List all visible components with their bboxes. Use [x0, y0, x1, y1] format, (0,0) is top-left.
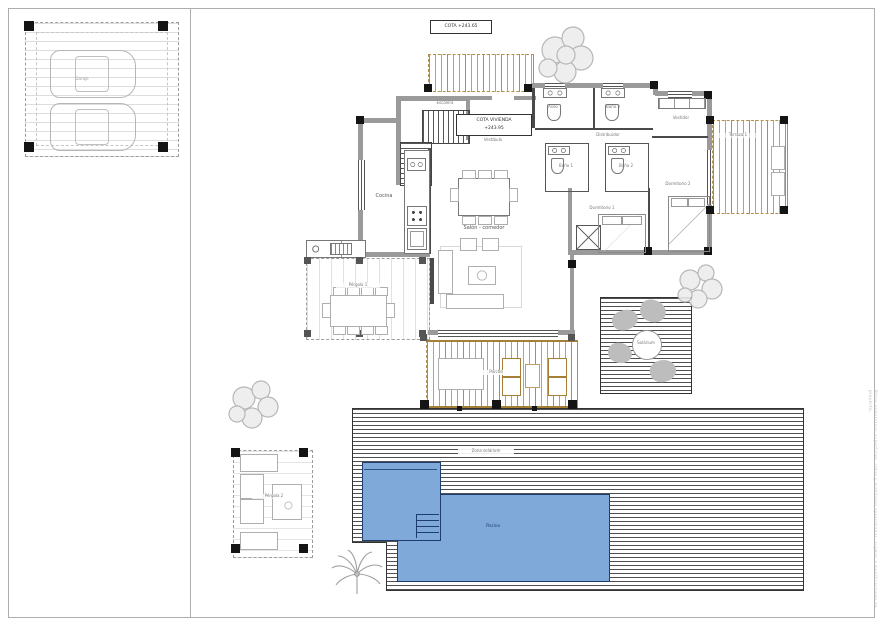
house-level-title: COTA VIVIENDA — [457, 118, 531, 123]
window — [668, 91, 692, 98]
room-label-bano1: Baño 1 — [551, 164, 581, 169]
tree-icon — [533, 22, 599, 94]
chair — [509, 188, 518, 202]
bed-pillow — [671, 198, 688, 207]
house-level-value: +243.95 — [457, 126, 531, 131]
planter — [771, 172, 785, 196]
sofa — [438, 250, 453, 294]
room-label-bano3: Baño 3 — [599, 105, 627, 110]
chair — [347, 326, 360, 335]
armchair — [460, 238, 477, 251]
bed-pillow — [602, 216, 622, 225]
column — [650, 81, 658, 89]
partition-wall — [593, 88, 595, 130]
room-label-dorm2: Dormitorio 2 — [652, 182, 704, 187]
chair — [478, 170, 492, 179]
column — [780, 116, 788, 124]
room-label-piscina: Piscina — [473, 524, 513, 529]
column — [420, 400, 429, 409]
column — [706, 206, 714, 214]
pool-steps — [416, 514, 439, 538]
column — [419, 257, 426, 264]
bathroom-vanity — [548, 146, 570, 155]
chair — [462, 170, 476, 179]
wall — [358, 118, 400, 123]
house-level-box: COTA VIVIENDA +243.95 — [456, 114, 532, 136]
chair — [322, 303, 331, 318]
drawing-sheet: Plano orientativo: superficies, cotas y … — [0, 0, 882, 625]
lounge-chair — [548, 358, 567, 377]
lounge-chair — [502, 377, 521, 396]
chair — [361, 326, 374, 335]
dining-table — [458, 178, 510, 216]
outdoor-dining-table — [330, 295, 387, 327]
carport-column — [158, 21, 168, 31]
barbecue-grill — [330, 243, 352, 255]
pergola-table — [272, 484, 302, 520]
room-label-garaje: Garaje — [62, 77, 102, 82]
column — [424, 84, 432, 92]
carport-column — [24, 21, 34, 31]
lounge-chair — [548, 377, 567, 396]
tree-icon — [224, 376, 284, 434]
column — [492, 400, 501, 409]
palm-tree-icon — [330, 546, 384, 600]
entry-pergola-slats — [428, 54, 534, 92]
room-label-escalera: Escalera — [422, 101, 468, 106]
sheet-divider-line — [190, 8, 191, 617]
room-label-dorm1: Dormitorio 1 — [576, 206, 628, 211]
partition-wall — [532, 88, 535, 128]
chair — [333, 287, 346, 296]
carport-column — [158, 142, 168, 152]
chair — [478, 216, 492, 225]
column — [524, 84, 532, 92]
column — [568, 334, 575, 341]
chair — [494, 170, 508, 179]
column — [420, 334, 427, 341]
armchair — [240, 499, 264, 524]
room-label-vestibulo: Vestíbulo — [471, 138, 515, 143]
kitchen-oven — [407, 228, 427, 250]
car-cabin — [75, 56, 109, 92]
site-level-box: COTA +243.65 — [430, 20, 492, 34]
tree-icon — [672, 260, 728, 314]
carport-column — [24, 142, 34, 152]
chair — [361, 287, 374, 296]
kitchen-sink — [407, 158, 426, 171]
chair — [462, 216, 476, 225]
bed-pillow — [622, 216, 642, 225]
sofa — [446, 294, 504, 309]
column — [780, 206, 788, 214]
bed-pillow — [688, 198, 705, 207]
room-label-vestidor: Vestidor — [662, 116, 700, 121]
bathroom-vanity — [601, 88, 625, 98]
chair — [375, 326, 388, 335]
chair — [386, 303, 395, 318]
room-label-pergola1: Pérgola 1 — [336, 283, 380, 288]
sofa — [240, 532, 278, 550]
partition-wall — [648, 188, 650, 250]
chair — [450, 188, 459, 202]
window — [358, 160, 365, 210]
room-label-pergola2: Pérgola 2 — [252, 494, 296, 499]
sofa — [240, 454, 278, 472]
partition-wall — [652, 136, 708, 138]
car-outline — [50, 50, 136, 98]
coffee-table — [468, 266, 496, 285]
bathroom-vanity — [608, 146, 630, 155]
column — [568, 400, 577, 409]
wall — [568, 188, 572, 252]
window — [438, 330, 558, 337]
room-label-terraza1: Terraza 1 — [716, 133, 760, 138]
column — [457, 406, 462, 411]
planter — [771, 146, 785, 170]
column — [231, 448, 240, 457]
car-cabin — [75, 109, 109, 145]
deck-label: Zona solárium — [458, 449, 514, 454]
chair — [494, 216, 508, 225]
partition-wall — [535, 128, 653, 130]
tv-unit — [430, 258, 434, 304]
wardrobe — [658, 98, 706, 109]
column — [304, 330, 311, 337]
room-label-porche: Porche — [478, 370, 514, 375]
column — [356, 116, 364, 124]
side-disclaimer-text: Plano orientativo: superficies, cotas y … — [868, 390, 878, 615]
pool-edge-line — [364, 469, 437, 470]
side-table — [525, 364, 540, 388]
room-label-bano2: Baño 2 — [611, 164, 641, 169]
chair — [347, 287, 360, 296]
car-outline — [50, 103, 136, 151]
room-label-cocina: Cocina — [366, 194, 402, 200]
column — [299, 448, 308, 457]
chair — [375, 287, 388, 296]
chair — [333, 326, 346, 335]
column — [304, 257, 311, 264]
kitchen-hob — [407, 206, 427, 226]
site-level-text: COTA +243.65 — [431, 24, 491, 29]
column — [356, 257, 363, 264]
room-label-distribuidor: Distribuidor — [584, 133, 632, 138]
room-label-salon: Salón - comedor — [454, 226, 514, 232]
column — [568, 260, 576, 268]
column — [706, 116, 714, 124]
column — [299, 544, 308, 553]
column — [532, 406, 537, 411]
room-label-solarium: Solárium — [630, 341, 662, 346]
column — [231, 544, 240, 553]
armchair — [482, 238, 499, 251]
room-label-aseo: Aseo — [540, 105, 566, 110]
